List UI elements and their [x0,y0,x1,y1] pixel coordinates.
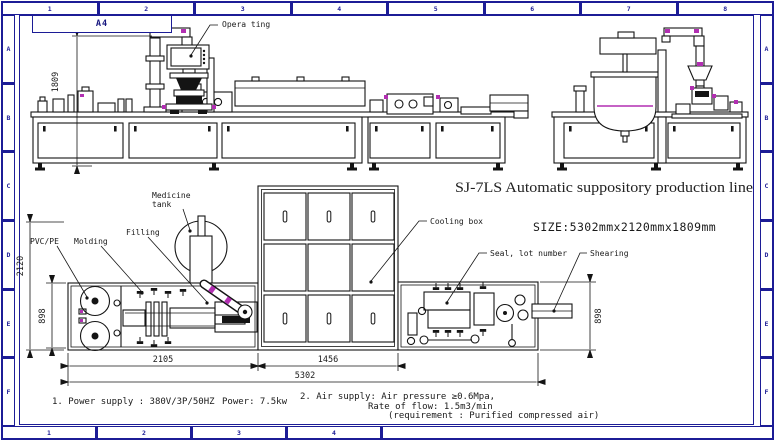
drawing-canvas: 1809 Opera ting [0,0,775,441]
dimension-label-898-left: 898 [38,308,48,323]
cooling-box-grid [258,186,398,350]
side-elevation-view [552,28,748,171]
drawing-title: SJ-7LS Automatic suppository production … [455,180,753,196]
dimension-1456: 1456 [260,353,399,371]
dimension-2105: 2105 [68,353,258,386]
dimension-label-1809: 1809 [51,72,61,92]
dimension-label-1456: 1456 [318,355,338,365]
operating-monitor [167,45,209,73]
shearing-chute-plan [532,304,572,318]
sealing-station-front [370,94,491,114]
paper-format-label: A4 [96,19,108,29]
cooling-tunnel-front [235,77,365,106]
callout-shearing: Shearing [552,249,628,313]
dimension-label-2105: 2105 [153,355,173,365]
plan-view: 2120 898 898 2105 [16,186,629,386]
dimension-5302: 5302 [70,353,539,386]
callout-cooling-box-label: Cooling box [430,217,483,226]
callout-seal-lot-number-label: Seal, lot number [490,249,567,258]
drawing-sheet: 1 2 3 4 5 6 7 8 1 2 3 4 A B C D E F A B … [0,0,775,441]
paper-format-box: A4 [32,15,172,33]
callout-pvc-pe-label: PVC/PE [30,237,59,246]
note-air-supply-3: (requirement : Purified compressed air) [388,411,599,421]
callout-medicine-tank-label2: tank [152,200,171,209]
callout-medicine-tank-label1: Medicine [152,191,191,200]
dimension-label-2120: 2120 [16,256,26,276]
dimension-label-5302: 5302 [295,371,315,381]
note-air-supply-1: 2. Air supply: Air pressure ≥0.6Mpa, [300,392,495,402]
front-elevation-view: 1809 Opera ting [31,20,528,171]
note-power-rating: Power: 7.5kw [222,397,288,407]
size-specification: SIZE:5302mmx2120mmx1809mm [533,220,716,234]
technical-notes: 1. Power supply : 380V/3P/50HZ Power: 7.… [52,392,599,421]
callout-molding-label: Molding [74,237,108,246]
callout-filling-label: Filling [126,228,160,237]
dimension-label-898-right: 898 [594,308,604,323]
callout-shearing-label: Shearing [590,249,629,258]
note-power-supply: 1. Power supply : 380V/3P/50HZ [52,397,215,407]
seal-section-plan [398,282,538,350]
dimension-898-left: 898 [38,283,66,348]
callout-operating-label: Opera ting [222,20,270,29]
